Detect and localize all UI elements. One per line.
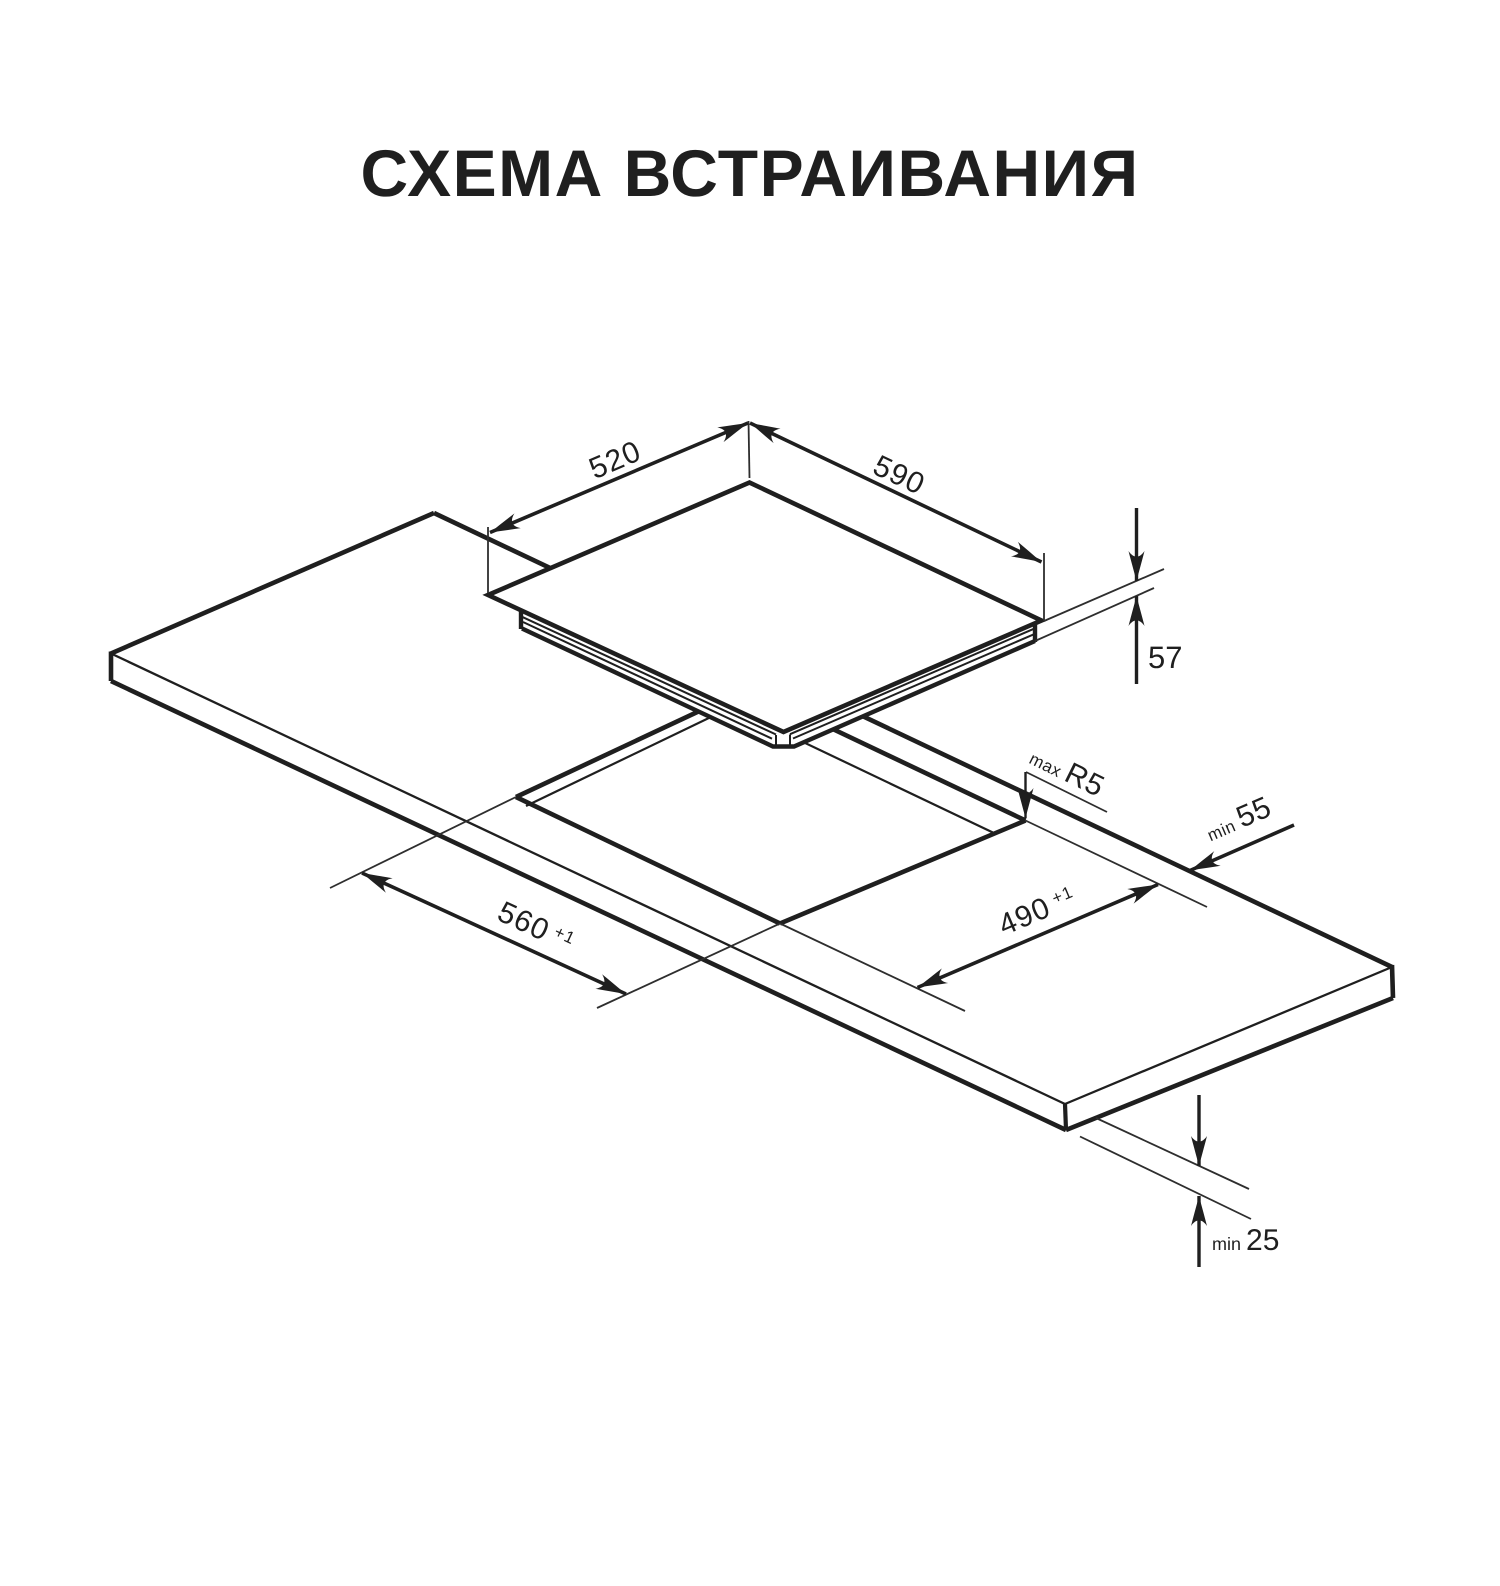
svg-text:57: 57 <box>1148 640 1182 675</box>
svg-text:СХЕМА ВСТРАИВАНИЯ: СХЕМА ВСТРАИВАНИЯ <box>360 136 1139 210</box>
